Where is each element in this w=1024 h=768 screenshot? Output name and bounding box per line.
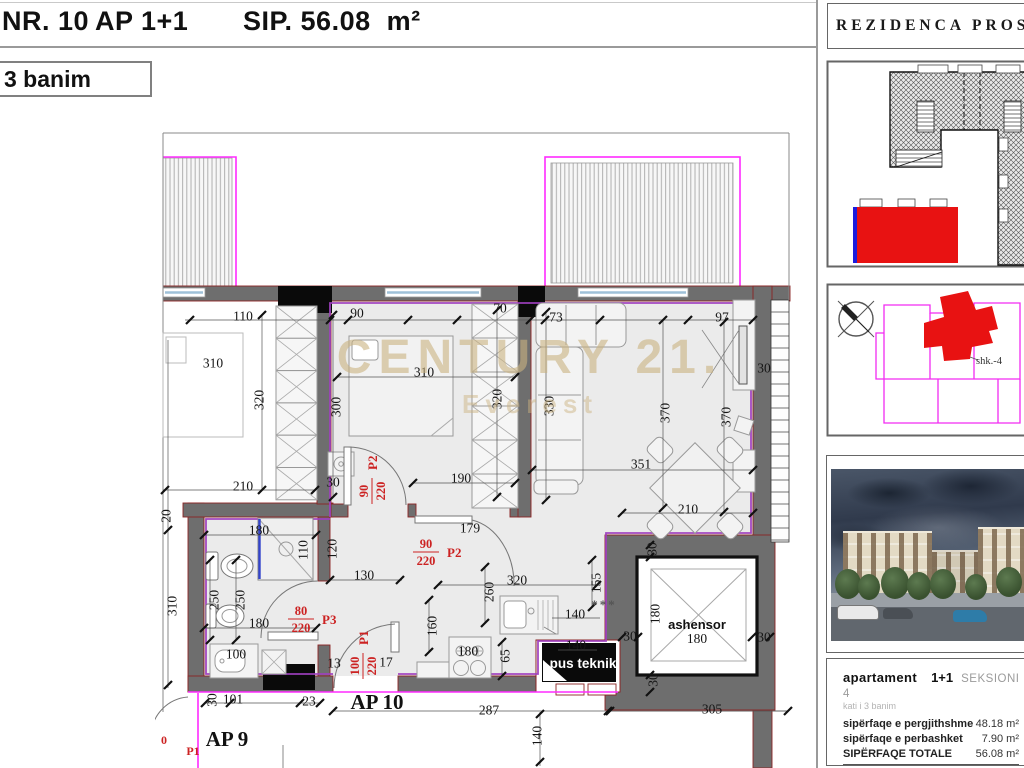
svg-text:220: 220 — [374, 482, 388, 501]
unit-type: AP 1+1 — [95, 6, 188, 37]
dimension-label: 180 — [249, 616, 270, 631]
neighbor-apartment-label: AP 9 — [206, 727, 249, 751]
dimension-label: 330 — [542, 396, 557, 417]
dimension-label: 320 — [490, 389, 505, 410]
dimension-label: 97 — [715, 310, 729, 325]
dimension-label: 179 — [460, 521, 481, 536]
dimension-label: 101 — [223, 692, 243, 707]
info-label: SIPËRFAQE TOTALE — [843, 748, 952, 760]
dimension-label: 30 — [645, 542, 660, 556]
dimension-label: 180 — [249, 523, 270, 538]
tree — [835, 569, 861, 599]
car-blue — [953, 610, 987, 622]
dimension-label: 30 — [326, 475, 340, 490]
unit-number: NR. 10 — [2, 6, 89, 37]
tree — [996, 567, 1022, 597]
header-rule — [0, 46, 817, 48]
dimension-label: 65 — [498, 649, 513, 663]
top-rule — [0, 2, 817, 3]
svg-text:P3: P3 — [322, 612, 337, 627]
svg-text:220: 220 — [292, 621, 311, 635]
balcony-right — [545, 157, 740, 288]
dimension-label: 23 — [302, 694, 316, 709]
section-label: shk.-4 — [976, 356, 1003, 367]
svg-text:80: 80 — [295, 604, 308, 618]
svg-text:220: 220 — [417, 554, 436, 568]
shaft-block — [1004, 101, 1021, 132]
dimension-label: 310 — [414, 365, 435, 380]
dimension-label: 30 — [757, 361, 771, 376]
staircase — [771, 300, 789, 542]
dimension-label: 210 — [678, 502, 699, 517]
info-label: sipërfaqe e pergjithshme — [843, 718, 973, 730]
floorplan-drawing: 1109070739731031032030032033037037030210… — [155, 120, 824, 768]
elevator-size-label: 180 — [687, 631, 708, 646]
dimension-label: 320 — [507, 573, 528, 588]
shaft-block — [917, 101, 934, 132]
dimension-label: 110 — [233, 309, 253, 324]
dimension-label: 100 — [226, 647, 247, 662]
dimension-label: 370 — [658, 403, 673, 424]
site-location-map: shk.-4 — [826, 283, 1024, 437]
project-title: REZIDENCA PROSP — [828, 17, 1024, 35]
highlighted-apartment — [856, 207, 958, 263]
dimension-label: 310 — [203, 356, 224, 371]
svg-text:90: 90 — [420, 537, 433, 551]
car-white — [837, 605, 879, 620]
dimension-label: 351 — [631, 457, 651, 472]
info-row: sipërfaqe e pergjithshme 48.18 m² — [843, 718, 1019, 730]
dimension-label: 287 — [479, 703, 500, 718]
info-row: sipërfaqe e perbashket 7.90 m² — [843, 733, 1019, 745]
svg-text:100: 100 — [348, 657, 362, 676]
dimension-label: 70 — [493, 301, 507, 316]
dimension-label: 250 — [207, 590, 222, 611]
car-dark — [883, 608, 913, 619]
project-title-panel: REZIDENCA PROSP — [827, 3, 1024, 49]
dimension-label: 190 — [451, 471, 472, 486]
neighbor-door-arc — [155, 697, 188, 735]
tree — [858, 574, 880, 600]
svg-text:90: 90 — [357, 485, 371, 498]
dimension-label: 305 — [702, 702, 723, 717]
dimension-label: 90 — [350, 306, 364, 321]
stars-mark: *** — [591, 597, 617, 612]
dimension-label: 180 — [648, 604, 663, 625]
apartment-type-value: 1+1 — [931, 670, 953, 685]
dimension-label: 160 — [425, 616, 440, 637]
tree — [907, 572, 931, 600]
dimension-label: 180 — [458, 644, 479, 659]
dimension-label: 140 — [565, 607, 586, 622]
floor-note: kati i 3 banim — [843, 701, 1016, 711]
info-value: 48.18 m² — [976, 718, 1019, 730]
svg-text:P2: P2 — [447, 545, 461, 560]
apartment-type-label: apartament — [843, 670, 917, 685]
dimension-label: 140 — [530, 726, 545, 747]
dimension-label: 73 — [549, 310, 563, 325]
highlight-edge — [853, 207, 857, 263]
building-render-photo — [826, 455, 1024, 653]
dimension-label: 210 — [233, 479, 254, 494]
dimension-label: 320 — [252, 390, 267, 411]
dimension-label: 250 — [233, 590, 248, 611]
apartment-label: AP 10 — [350, 690, 403, 714]
dimension-label: 30 — [623, 629, 637, 644]
info-label: sipërfaqe e perbashket — [843, 733, 963, 745]
info-value: 7.90 m² — [982, 733, 1019, 745]
floor-overview-map — [826, 60, 1024, 268]
tree — [965, 574, 987, 600]
dimension-label: 130 — [354, 568, 375, 583]
svg-text:220: 220 — [365, 657, 379, 676]
edge-red-label: 0 — [161, 733, 167, 747]
elevator-label: ashensor — [668, 617, 726, 632]
dimension-label: 30 — [757, 630, 771, 645]
dimension-label: 310 — [165, 596, 180, 617]
balcony-left — [163, 157, 236, 287]
render-scene — [831, 469, 1024, 641]
dimension-label: 370 — [719, 407, 734, 428]
technical-shaft-label: pus teknik — [550, 656, 617, 671]
dimension-label: 17 — [379, 655, 393, 670]
dimension-label: 30 — [205, 693, 220, 707]
svg-text:P2: P2 — [365, 456, 380, 470]
apartment-info-panel: apartament1+1SEKSIONI 4 kati i 3 banim s… — [826, 658, 1024, 766]
dimension-label: 140 — [566, 638, 587, 653]
floor-label-box: 3 banim — [0, 61, 152, 97]
svg-text:P1: P1 — [356, 631, 371, 645]
dimension-label: 30 — [646, 673, 661, 687]
dimension-label: 120 — [325, 539, 340, 560]
edge-door-label: P1 — [186, 744, 199, 758]
info-row-total: SIPËRFAQE TOTALE 56.08 m² — [843, 748, 1019, 765]
floor-label: 3 banim — [0, 66, 91, 93]
dimension-label: 300 — [329, 397, 344, 418]
unit-area: SIP. 56.08 m² — [243, 6, 421, 37]
dimension-label: 20 — [159, 509, 174, 523]
dimension-label: 155 — [589, 573, 604, 594]
info-value: 56.08 m² — [976, 748, 1019, 760]
dimension-label: 13 — [327, 656, 341, 671]
tree — [930, 569, 956, 599]
dimension-label: 110 — [296, 540, 311, 560]
floorplan-page: NR. 10 AP 1+1 SIP. 56.08 m² 3 banim — [0, 0, 1024, 768]
dimension-label: 260 — [482, 582, 497, 603]
